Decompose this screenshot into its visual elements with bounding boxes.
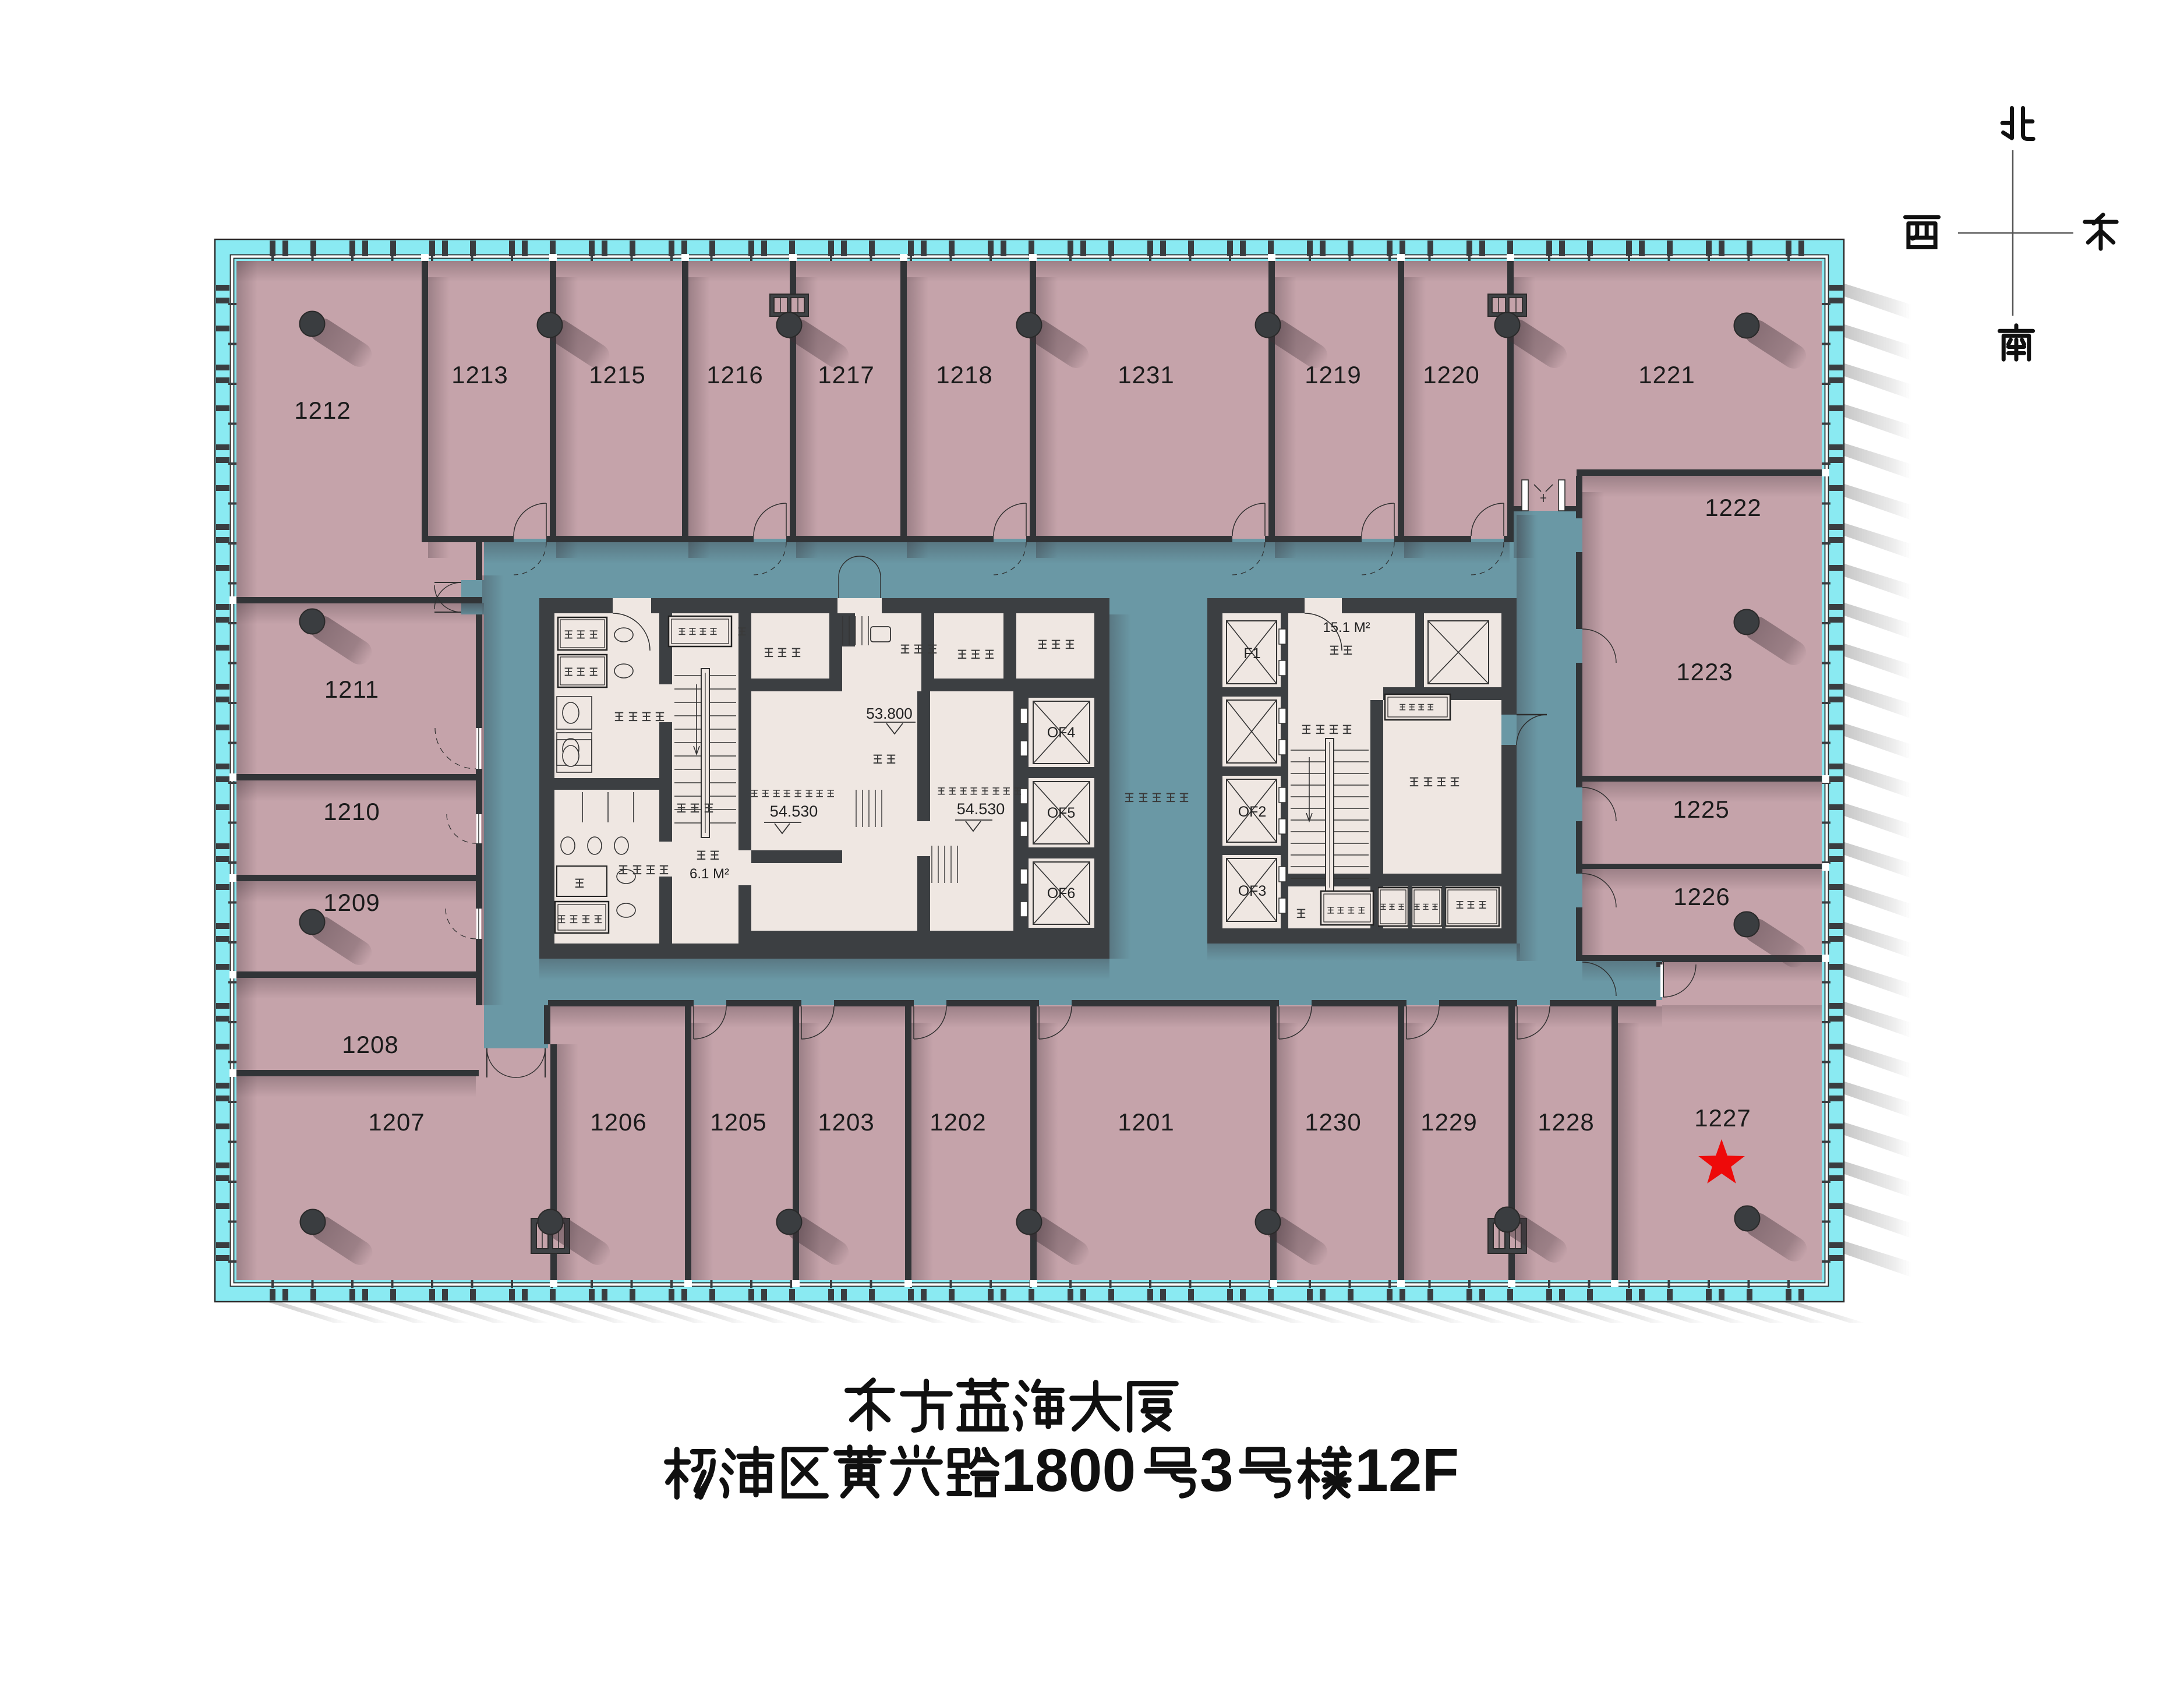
svg-text:1205: 1205 bbox=[710, 1108, 766, 1136]
svg-text:1207: 1207 bbox=[368, 1108, 425, 1136]
svg-text:OF4: OF4 bbox=[1047, 725, 1076, 741]
svg-text:OF3: OF3 bbox=[1238, 883, 1267, 899]
svg-text:15.1 M²: 15.1 M² bbox=[1323, 620, 1370, 635]
svg-text:1225: 1225 bbox=[1673, 796, 1729, 823]
svg-text:1217: 1217 bbox=[818, 361, 874, 388]
svg-text:54.530: 54.530 bbox=[957, 800, 1005, 818]
svg-text:1231: 1231 bbox=[1118, 361, 1174, 388]
svg-text:F1: F1 bbox=[1243, 645, 1260, 662]
svg-text:1222: 1222 bbox=[1705, 494, 1761, 521]
svg-text:1228: 1228 bbox=[1538, 1108, 1594, 1136]
svg-text:1212: 1212 bbox=[294, 397, 351, 424]
svg-text:1221: 1221 bbox=[1638, 361, 1695, 388]
svg-text:1227: 1227 bbox=[1694, 1104, 1751, 1132]
svg-text:1223: 1223 bbox=[1676, 658, 1733, 686]
svg-text:OF5: OF5 bbox=[1047, 805, 1076, 821]
svg-text:1210: 1210 bbox=[323, 798, 380, 825]
svg-text:1202: 1202 bbox=[930, 1108, 986, 1136]
svg-text:12F: 12F bbox=[1355, 1437, 1459, 1504]
svg-text:1216: 1216 bbox=[706, 361, 763, 388]
svg-text:1229: 1229 bbox=[1420, 1108, 1477, 1136]
svg-text:1206: 1206 bbox=[590, 1108, 646, 1136]
svg-text:1220: 1220 bbox=[1423, 361, 1479, 388]
svg-text:1800: 1800 bbox=[1001, 1437, 1136, 1504]
svg-text:1203: 1203 bbox=[818, 1108, 874, 1136]
svg-text:OF6: OF6 bbox=[1047, 885, 1076, 902]
svg-text:1226: 1226 bbox=[1673, 883, 1730, 910]
svg-text:1230: 1230 bbox=[1305, 1108, 1361, 1136]
svg-text:1213: 1213 bbox=[451, 361, 508, 388]
svg-text:1209: 1209 bbox=[323, 889, 380, 916]
svg-text:1215: 1215 bbox=[589, 361, 645, 388]
svg-text:54.530: 54.530 bbox=[770, 803, 818, 820]
svg-text:3: 3 bbox=[1200, 1437, 1234, 1504]
svg-text:1208: 1208 bbox=[342, 1031, 398, 1058]
svg-text:OF2: OF2 bbox=[1238, 804, 1267, 820]
svg-text:1219: 1219 bbox=[1305, 361, 1361, 388]
svg-text:1211: 1211 bbox=[324, 676, 379, 703]
svg-text:1201: 1201 bbox=[1118, 1108, 1174, 1136]
svg-text:53.800: 53.800 bbox=[866, 705, 913, 722]
svg-text:6.1 M²: 6.1 M² bbox=[690, 866, 729, 882]
svg-text:1218: 1218 bbox=[936, 361, 992, 388]
